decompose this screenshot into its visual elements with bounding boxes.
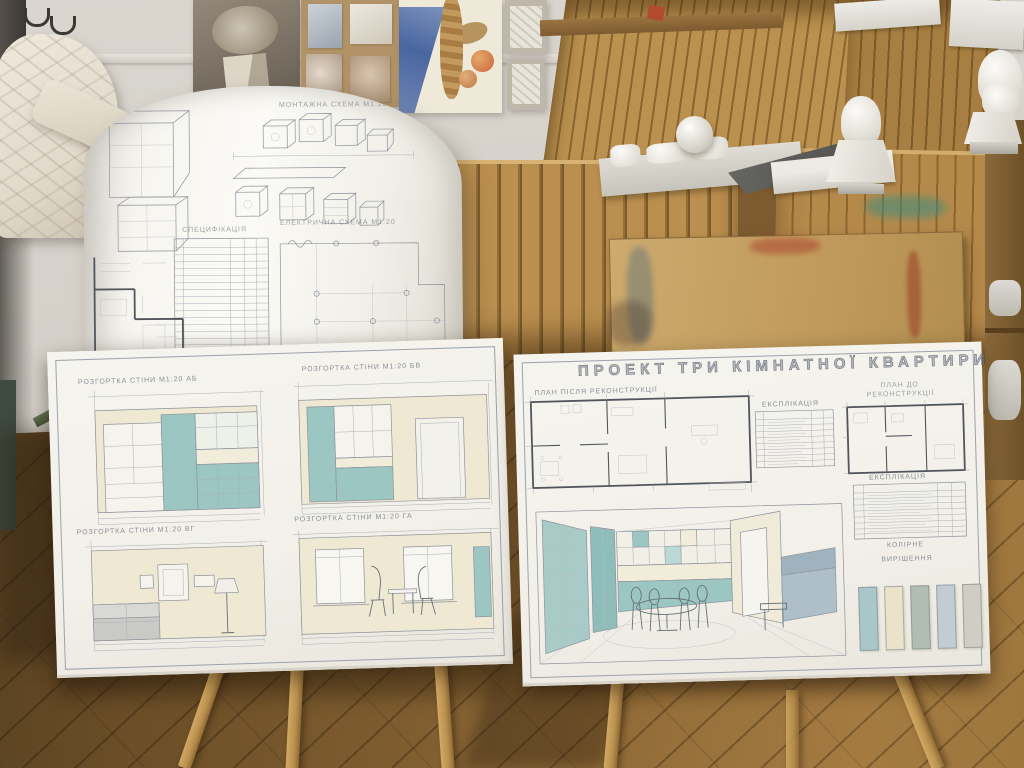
coat-hook [50,16,76,35]
bust-plinth [970,142,1018,154]
shelf-ledge [985,328,1024,333]
plaster-bust [826,96,896,196]
explication-table-2 [853,482,966,539]
rolled-drawing-sheet: МОНТАЖНА СХЕМА М1:20 ЕЛЕКТРИЧНА СХЕМА М1… [83,84,463,363]
electrical-scheme-title: ЕЛЕКТРИЧНА СХЕМА М1:20 [280,219,396,227]
plan-before-reconstruction [842,399,970,473]
plan-after-reconstruction [525,390,758,498]
plaster-eye-sketch [210,3,281,58]
framed-sketch [507,58,545,110]
plaster-ornament [610,143,642,168]
plywood-board [609,231,965,352]
fruit [459,70,478,88]
plan-fragment [94,257,183,356]
color-swatch-4 [936,584,957,649]
specification-table [174,238,269,351]
left-drawing-board: РОЗГОРТКА СТІНИ М1:20 АБ РОЗГОРТКА СТІНИ… [47,338,513,678]
elevation-vg [85,535,270,651]
sketch [510,6,542,47]
interior-perspective [536,503,846,663]
electrical-scheme [280,239,445,352]
bust-shoulders [964,112,1022,144]
right-drawing-board: ПРОЕКТ ТРИ КІМНАТНОЇ КВАРТИРИ ПЛАН ПІСЛЯ… [513,342,990,687]
still-life-study [350,4,392,44]
coat-hook [24,8,50,27]
specification-title: СПЕЦИФІКАЦІЯ [182,226,247,234]
studio-scene: МОНТАЖНА СХЕМА М1:20 ЕЛЕКТРИЧНА СХЕМА М1… [0,0,1024,768]
color-swatch-3 [910,585,931,650]
elevation-bv [294,376,496,514]
white-folder [949,0,1024,50]
montage-scheme-cabinets [233,113,394,226]
color-swatches [858,584,983,651]
axonometric-unit [109,111,190,252]
red-paint-stain [750,237,820,254]
green-board-edge [0,380,16,530]
plaster-sphere [676,116,713,153]
still-life-study [308,4,342,48]
sketch [512,64,541,104]
color-swatch-1 [858,587,879,652]
color-solution-label-1: КОЛІРНЕ [887,541,924,549]
red-object [647,5,665,22]
elevation-ga [293,524,502,644]
easel-leg [786,690,799,768]
explication-table-1 [755,410,835,468]
fruit [471,50,494,73]
folded-cloth [988,360,1021,420]
red-paint-drip [906,251,922,337]
folded-cloth [989,280,1021,316]
color-swatch-2 [884,586,905,651]
teal-paint-stain [866,195,946,218]
bust-shoulders [826,140,896,182]
dark-smudge [607,301,652,346]
right-shelf [985,120,1024,480]
plan-before-label-1: ПЛАН ДО [880,381,919,389]
elevation-ab [88,385,268,524]
color-swatch-5 [962,584,983,649]
wall-elevations-drawing [47,338,513,678]
bust-plinth [838,184,884,194]
montage-scheme-title: МОНТАЖНА СХЕМА М1:20 [279,101,388,109]
rolled-drawing-lines [83,84,463,363]
plaster-bust-bearded [962,50,1024,154]
color-solution-label-2: ВИРІШЕННЯ [881,555,933,563]
